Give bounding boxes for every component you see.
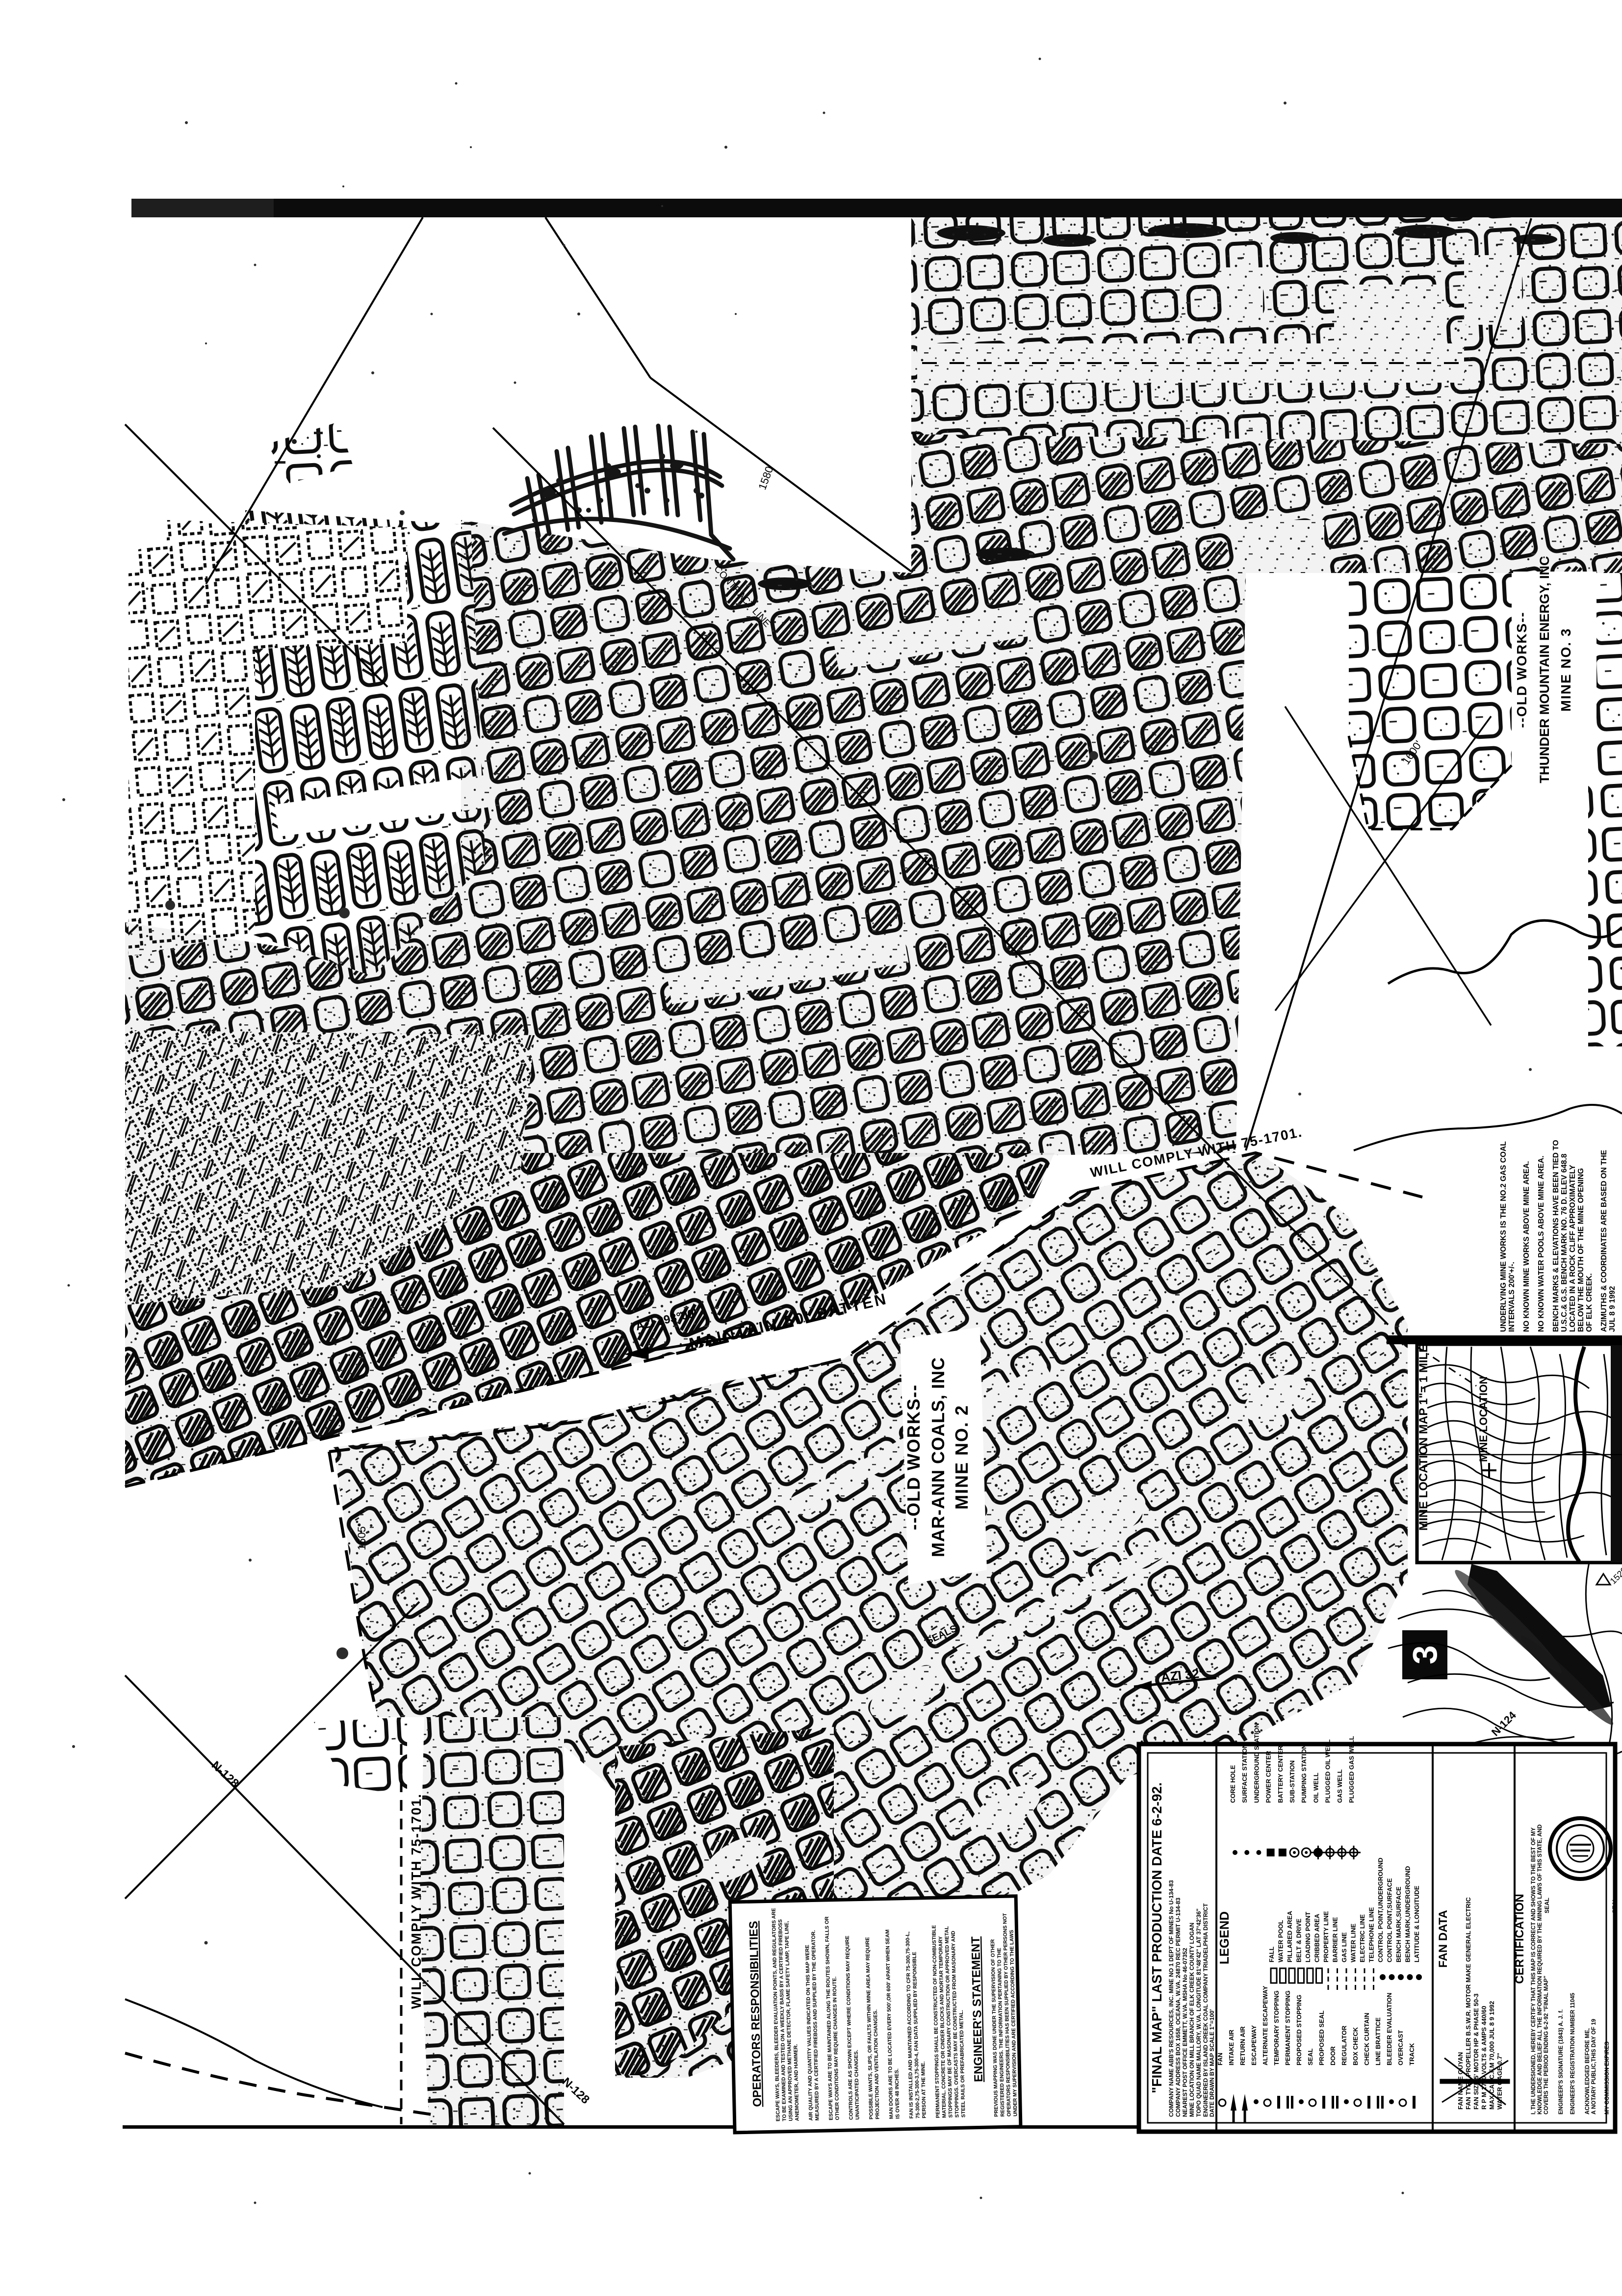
svg-text:TRACK: TRACK: [1408, 2043, 1416, 2065]
svg-text:POWER CENTER: POWER CENTER: [1265, 1750, 1272, 1803]
svg-text:MINE LOCATION MAP 1"= 1 MILE: MINE LOCATION MAP 1"= 1 MILE: [1417, 1345, 1430, 1531]
svg-text:CONTROL POINT,UNDERGROUND: CONTROL POINT,UNDERGROUND: [1377, 1857, 1384, 1962]
svg-text:BLEEDER EVALUATION: BLEEDER EVALUATION: [1386, 1993, 1393, 2065]
svg-text:WATER POOL: WATER POOL: [1277, 1920, 1285, 1962]
svg-text:WATER LINE: WATER LINE: [1350, 1923, 1357, 1962]
svg-text:BARRIER LINE: BARRIER LINE: [1332, 1917, 1339, 1962]
svg-text:NO KNOWN MINE WORKS ABOVE MINE: NO KNOWN MINE WORKS ABOVE MINE AREA.: [1522, 1161, 1531, 1332]
svg-text:ENGINEER'S SIGNATURE (1843) A: ENGINEER'S SIGNATURE (1843) A. J. f.: [1558, 2009, 1564, 2114]
svg-text:BOX CHECK: BOX CHECK: [1352, 2027, 1359, 2065]
svg-text:MINE LOCATION ON MILL BRANCH: MINE LOCATION ON MILL BRANCH OF ELK CREE…: [1188, 1923, 1195, 2117]
svg-text:GAS LINE: GAS LINE: [1340, 1932, 1348, 1962]
svg-text:MINE NO. 3: MINE NO. 3: [1558, 628, 1573, 712]
svg-text:ESCAPEWAY: ESCAPEWAY: [1250, 2025, 1258, 2065]
svg-text:PUMPING STATION: PUMPING STATION: [1300, 1745, 1308, 1803]
svg-text:BELT & DRIVE: BELT & DRIVE: [1295, 1918, 1303, 1962]
svg-text:U.S.C.& G.S. BENCH MARK NO. 76: U.S.C.& G.S. BENCH MARK NO. 76 D. ELEV 6…: [1560, 1153, 1569, 1332]
svg-text:SURFACE STATION: SURFACE STATION: [1241, 1744, 1248, 1803]
svg-text:3: 3: [1406, 1645, 1444, 1665]
svg-text:ACKNOWLEDGED BEFORE ME,: ACKNOWLEDGED BEFORE ME,: [1585, 2028, 1591, 2114]
svg-text:DATE DRAWN BY: DATE DRAWN BY MAP SCALE 1"=100': [1209, 2009, 1215, 2117]
svg-text:BENCH MARK,SURFACE: BENCH MARK,SURFACE: [1395, 1886, 1402, 1962]
svg-text:CONTROL POINT,SURFACE: CONTROL POINT,SURFACE: [1386, 1878, 1393, 1962]
svg-text:OF ELK CREEK.: OF ELK CREEK.: [1585, 1273, 1594, 1332]
svg-text:FAN DATA: FAN DATA: [1437, 1910, 1450, 1968]
svg-text:--OLD WORKS--: --OLD WORKS--: [903, 1384, 924, 1530]
svg-text:BENCH MARKS & ELEVATIONS HAVE: BENCH MARKS & ELEVATIONS HAVE BEEN TIED …: [1552, 1140, 1560, 1332]
svg-text:TEMPORARY STOPPING: TEMPORARY STOPPING: [1273, 1990, 1280, 2065]
svg-text:A NOTARY PUBLIC,THIS DA: A NOTARY PUBLIC,THIS DAY OF 19: [1591, 2019, 1597, 2114]
svg-text:WILL COMPLY WITH 75-1701.: WILL COMPLY WITH 75-1701.: [409, 1793, 424, 2009]
svg-text:PERSON AT THE MINE.: PERSON AT THE MINE.: [920, 2061, 927, 2118]
svg-text:UNDERGROUND STATION: UNDERGROUND STATION: [1253, 1723, 1260, 1803]
svg-text:IS OVER 48 INCHES.: IS OVER 48 INCHES.: [894, 2068, 901, 2119]
svg-text:PERMANENT STOPPING: PERMANENT STOPPING: [1284, 1990, 1291, 2065]
svg-text:PLUGGED OIL WELL: PLUGGED OIL WELL: [1324, 1739, 1332, 1803]
svg-text:PLUGGED GAS WELL: PLUGGED GAS WELL: [1348, 1736, 1355, 1803]
svg-text:RETURN AIR: RETURN AIR: [1239, 2026, 1246, 2065]
svg-text:OVERCAST: OVERCAST: [1397, 2030, 1404, 2065]
svg-text:LOADING POINT: LOADING POINT: [1304, 1912, 1312, 1962]
svg-text:PILLARED AREA: PILLARED AREA: [1286, 1910, 1293, 1962]
svg-text:MINE NO. 2: MINE NO. 2: [952, 1405, 972, 1510]
svg-text:NEAREST POST OFFICE EMMETT, W: NEAREST POST OFFICE EMMETT, W.VA. MSHA N…: [1182, 1948, 1188, 2117]
svg-text:CORE HOLE: CORE HOLE: [1229, 1765, 1236, 1803]
svg-text:GAS WELL: GAS WELL: [1336, 1769, 1343, 1803]
svg-text:"FINAL MAP" LAST PRODUCTION D: "FINAL MAP" LAST PRODUCTION DATE 6-2-92.: [1149, 1782, 1164, 2093]
svg-text:COVERS THE PERIOD ENDING 6-2-: COVERS THE PERIOD ENDING 6-2-92 "FINAL M…: [1544, 1976, 1549, 2114]
svg-text:FAN SIZE 5': FAN SIZE 5' MOTOR HP & PHASE 50-3: [1472, 1993, 1480, 2110]
svg-text:BENCH MARK,UNDERGROUND: BENCH MARK,UNDERGROUND: [1404, 1866, 1412, 1962]
svg-text:LINE BRATTICE: LINE BRATTICE: [1374, 2017, 1382, 2065]
svg-text:FAN: FAN: [1216, 2053, 1224, 2065]
svg-text:OIL WELL: OIL WELL: [1312, 1773, 1319, 1803]
svg-text:SEAL: SEAL: [1307, 2048, 1314, 2065]
svg-text:AZIMUTHS & COORDINATES ARE BAS: AZIMUTHS & COORDINATES ARE BASED ON THE: [1600, 1150, 1608, 1332]
svg-text:LATITUDE & LONGITUDE: LATITUDE & LONGITUDE: [1413, 1885, 1420, 1962]
svg-text:BELOW THE MOUTH OF THE MINE OP: BELOW THE MOUTH OF THE MINE OPENING: [1577, 1168, 1585, 1332]
svg-text:1605': 1605': [356, 1524, 368, 1550]
svg-text:KNOWLEDGE AND BELIEF ALL THE I: KNOWLEDGE AND BELIEF ALL THE INFORMATION…: [1537, 1825, 1543, 2114]
svg-text:BATTERY CENTER: BATTERY CENTER: [1277, 1746, 1284, 1803]
svg-text:CRIBBED AREA: CRIBBED AREA: [1313, 1913, 1321, 1962]
svg-text:REGULATOR: REGULATOR: [1340, 2025, 1348, 2065]
svg-text:INTERVALS 200'+/-.: INTERVALS 200'+/-.: [1508, 1262, 1516, 1332]
svg-text:COMPANY ADDRESS BOX 1658, OCE: COMPANY ADDRESS BOX 1658, OCEANA, W.VA. …: [1175, 1898, 1182, 2117]
svg-text:NO KNOWN WATER POOLS ABOVE MIN: NO KNOWN WATER POOLS ABOVE MINE AREA.: [1537, 1156, 1545, 1332]
svg-text:UNDERLYING MINE WORKS IS THE N: UNDERLYING MINE WORKS IS THE NO.2 GAS CO…: [1499, 1141, 1508, 1332]
svg-text:TOPO QUAD NAME MALLORY, W.VA.: TOPO QUAD NAME MALLORY, W.VA. LONGITUDE …: [1195, 1908, 1202, 2117]
svg-text:ENGINEER'S REGISTRATION NUMBER: ENGINEER'S REGISTRATION NUMBER 11045: [1570, 1992, 1576, 2114]
svg-text:FALL: FALL: [1268, 1946, 1275, 1962]
svg-text:CERTIFICATION: CERTIFICATION: [1513, 1894, 1526, 1984]
svg-text:SEAL: SEAL: [1611, 1898, 1618, 1913]
svg-text:ELECTRIC LINE: ELECTRIC LINE: [1359, 1914, 1366, 1962]
svg-text:THUNDER MOUNTAIN ENERGY, INC: THUNDER MOUNTAIN ENERGY, INC: [1537, 556, 1552, 783]
svg-text:MAR-ANN COALS, INC: MAR-ANN COALS, INC: [928, 1357, 948, 1557]
svg-text:ALTERNATE ESCAPEWAY: ALTERNATE ESCAPEWAY: [1262, 1985, 1269, 2065]
svg-text:SUB-STATION: SUB-STATION: [1288, 1760, 1296, 1803]
svg-text:PROPOSED STOPPING: PROPOSED STOPPING: [1295, 1995, 1303, 2065]
svg-text:MINE LOCATION: MINE LOCATION: [1477, 1377, 1490, 1462]
svg-text:COMPANY NAME ABB'S RESOURCES,: COMPANY NAME ABB'S RESOURCES, INC. MINE …: [1168, 1880, 1175, 2117]
svg-text:I, THE UNDERSIGNED, HEREBY CER: I, THE UNDERSIGNED, HEREBY CERTIFY THAT …: [1531, 1827, 1537, 2114]
svg-text:--OLD WORKS--: --OLD WORKS--: [1514, 611, 1529, 728]
svg-text:LEGEND: LEGEND: [1217, 1911, 1232, 1964]
svg-text:LOCATED IN A ROCK CLIFF APPROX: LOCATED IN A ROCK CLIFF APPROXIMATELY: [1569, 1165, 1577, 1332]
svg-text:CHECK CURTAIN: CHECK CURTAIN: [1363, 2013, 1370, 2065]
svg-text:MY COMMISSION EXPIRES: MY COMMISSION EXPIRES: [1604, 2041, 1610, 2114]
svg-text:INTAKE AIR: INTAKE AIR: [1228, 2029, 1235, 2065]
svg-text:TELEPHONE LINE: TELEPHONE LINE: [1368, 1907, 1375, 1962]
svg-text:ENGINEERED BY ISLAND CREEK COA: ENGINEERED BY ISLAND CREEK COAL COMPANY …: [1202, 1903, 1209, 2117]
svg-text:R P M 1750: R P M 1750 VOLTS & AMPS 440/60: [1480, 2006, 1488, 2110]
svg-text:PROPERTY LINE: PROPERTY LINE: [1322, 1911, 1330, 1962]
svg-text:JUL 8 9 1992: JUL 8 9 1992: [1608, 1286, 1617, 1332]
svg-text:PROPOSED SEAL: PROPOSED SEAL: [1318, 2010, 1325, 2065]
svg-text:DOOR: DOOR: [1329, 2046, 1337, 2065]
svg-text:SEAL: SEAL: [1544, 1898, 1550, 1913]
